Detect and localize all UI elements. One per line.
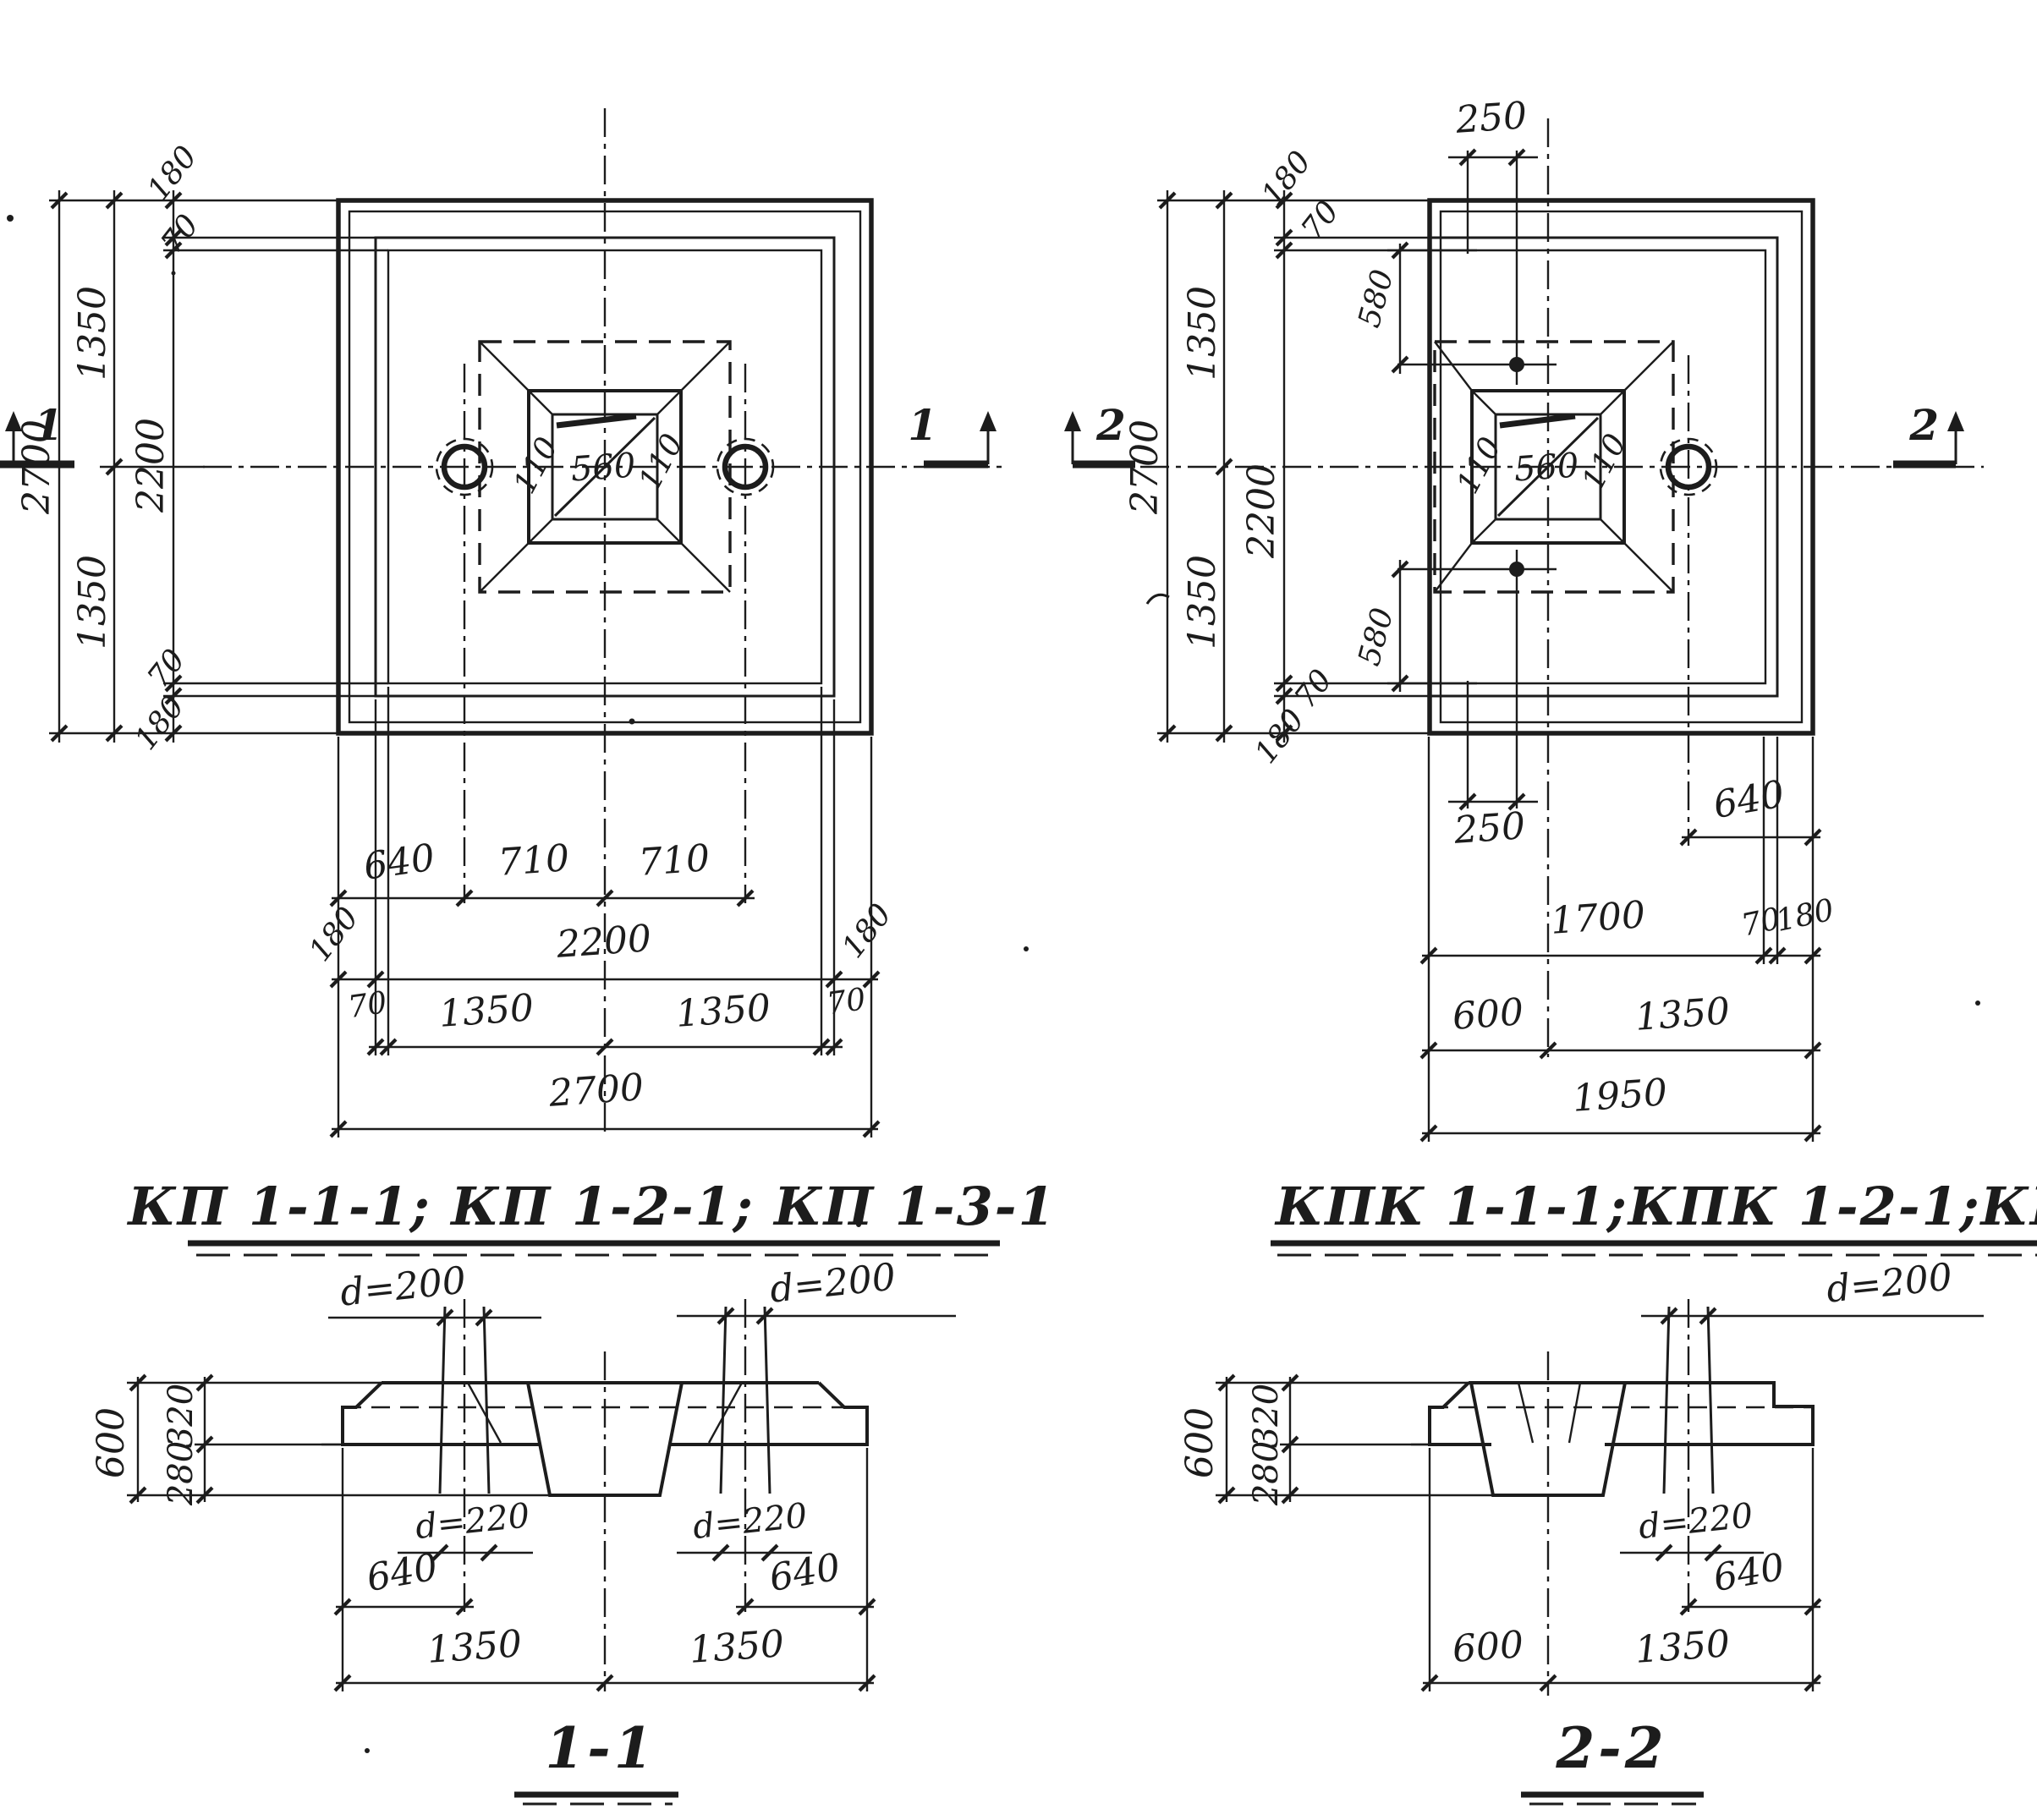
- kpk-cut-mark-right: 2: [1893, 400, 1964, 464]
- s1-dim-1350-r: 1350: [688, 1622, 785, 1672]
- kpk-dim-1350: 1350: [1633, 989, 1731, 1039]
- kp-socket-dim-left: 110: [508, 432, 565, 500]
- kpk-socket-dim-left: 110: [1451, 432, 1508, 500]
- mark-titles: КП 1-1-1; КП 1-2-1; КП 1-3-1 КПК 1-1-1;К…: [126, 1176, 2037, 1255]
- kp-plan-view: 2700 1350 1350 2200 180 70 70 180 110 56…: [0, 108, 1008, 1137]
- kpk-dim-half-top: 1350: [1181, 286, 1224, 381]
- kpk-dim-edge-top: 180: [1255, 145, 1319, 211]
- kpk-dim-ledge-top: 70: [1295, 195, 1347, 246]
- kp-dim-640: 640: [361, 836, 437, 889]
- kp-dim-ledge-bot: 70: [141, 643, 193, 694]
- kp-dim-half-top: 1350: [71, 286, 114, 381]
- kp-dim-180-bl: 180: [303, 901, 366, 968]
- s1-label: 1-1: [545, 1715, 656, 1781]
- section-1-1: 600 320 280 d=200 d=200 d=220 d=220 640 …: [90, 1255, 956, 1804]
- kp-socket-shade: [557, 416, 636, 425]
- s2-d200: d=200: [1825, 1255, 1955, 1311]
- s1-d220-right: d=220: [691, 1496, 810, 1547]
- kpk-dim-180-b: 180: [1773, 893, 1837, 939]
- kpk-dim-580-top: 580: [1352, 266, 1400, 332]
- s2-label: 2-2: [1555, 1715, 1666, 1781]
- kp-dim-1350-br: 1350: [674, 986, 771, 1036]
- kp-dim-70-br: 70: [825, 982, 868, 1022]
- s1-d200-left: d=200: [338, 1258, 469, 1314]
- kpk-socket-shade: [1500, 416, 1575, 425]
- cut-digit: 2: [1095, 400, 1126, 450]
- cut-digit: 1: [908, 400, 937, 450]
- s1-d200-lines: [328, 1316, 956, 1318]
- kp-dim-2700-b: 2700: [546, 1066, 645, 1116]
- kpk-dim-600: 600: [1451, 990, 1524, 1039]
- foundation-drawing: 2700 1350 1350 2200 180 70 70 180 110 56…: [0, 0, 2037, 1820]
- kpk-dim-ledge-bot: 70: [1288, 663, 1340, 715]
- s1-hidden-lines: [321, 1407, 867, 1444]
- kpk-dim-1700: 1700: [1549, 893, 1646, 943]
- s2-dim-280: 280: [1247, 1441, 1286, 1506]
- s2-funnel-faces: [1518, 1383, 1580, 1443]
- kp-cut-mark-right: 1: [908, 400, 997, 464]
- s1-d220-left: d=220: [414, 1496, 532, 1547]
- kp-dim-inner-v: 2200: [129, 418, 173, 513]
- kpk-plan-view: 250 250 580 580 2700 1350 1350 2200 180 …: [1064, 94, 1984, 1142]
- kpk-socket-dim-center: 560: [1513, 446, 1579, 489]
- s1-d200-right: d=200: [768, 1255, 898, 1311]
- kp-dim-180-br: 180: [836, 897, 899, 964]
- kpk-dim-inner-v: 2200: [1240, 463, 1283, 559]
- kpk-dim-640: 640: [1710, 772, 1788, 827]
- kp-dim-ledge-top: 70: [155, 208, 206, 260]
- cut-digit: 1: [34, 400, 63, 450]
- s2-dim-1350: 1350: [1633, 1622, 1731, 1672]
- s1-dim-280: 280: [162, 1441, 200, 1506]
- s2-d220: d=220: [1637, 1496, 1755, 1547]
- kp-socket-dim-center: 560: [569, 446, 636, 489]
- s1-dim-600: 600: [90, 1407, 133, 1478]
- kp-title: КП 1-1-1; КП 1-2-1; КП 1-3-1: [126, 1176, 1056, 1237]
- kp-dim-edge-top: 180: [141, 140, 205, 206]
- s2-body-outline: [1430, 1383, 1813, 1444]
- kpk-dim-edge-bot: 180: [1249, 703, 1312, 770]
- s2-dim-320: 320: [1247, 1384, 1286, 1448]
- kpk-dim-1950: 1950: [1571, 1071, 1668, 1121]
- s2-hidden-lines: [1411, 1407, 1813, 1444]
- kp-dim-70-bl: 70: [346, 985, 389, 1025]
- kp-dim-1350-bl: 1350: [437, 986, 535, 1036]
- kp-dim-2200-b: 2200: [554, 917, 652, 967]
- kp-dim-edge-bot: 180: [129, 689, 192, 756]
- kpk-dim-580-bot: 580: [1352, 605, 1400, 670]
- kpk-dim-250-bot: 250: [1452, 804, 1526, 852]
- kpk-dim-half-bot: 1350: [1181, 555, 1224, 650]
- s1-dim-640-l: 640: [364, 1545, 442, 1600]
- s2-dim-600: 600: [1451, 1623, 1524, 1671]
- s1-dim-1350-l: 1350: [426, 1622, 523, 1672]
- kp-dim-710-r: 710: [637, 836, 711, 885]
- s1-dim-320: 320: [162, 1384, 200, 1448]
- cut-digit: 2: [1908, 400, 1939, 450]
- section-2-2: 600 320 280 d=200 d=220 640 600 1350 2-2: [1178, 1255, 1984, 1804]
- blueprint-sheet: 2700 1350 1350 2200 180 70 70 180 110 56…: [0, 0, 2037, 1820]
- s2-dim-600v: 600: [1178, 1407, 1222, 1478]
- kpk-dim-250-top: 250: [1453, 94, 1528, 142]
- kpk-title: КПК 1-1-1;КПК 1-2-1;КПК 1-3-1: [1274, 1176, 2037, 1237]
- kp-dim-710-l: 710: [497, 836, 570, 885]
- kp-dim-half-bot: 1350: [71, 555, 114, 650]
